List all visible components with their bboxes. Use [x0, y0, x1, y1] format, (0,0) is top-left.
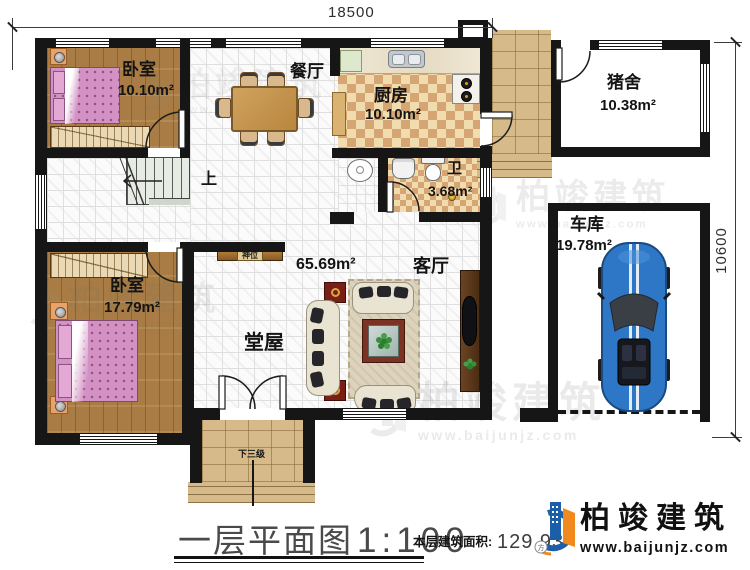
plan-title-text: 一层平面图	[178, 522, 353, 559]
room-label-kitchen: 厨房	[374, 87, 408, 104]
dimension-line-top	[12, 27, 492, 28]
car	[596, 241, 672, 413]
room-label-dining: 餐厅	[290, 63, 324, 80]
room-area-hall: 65.69m²	[296, 257, 356, 273]
room-label-pigsty: 猪舍	[607, 74, 641, 91]
floor-area-label: 本层建筑面积:	[413, 536, 492, 549]
room-label-bedroom-bottom: 卧室	[110, 277, 144, 294]
stair-up-label: 上	[201, 172, 217, 188]
room-label-bedroom-top: 卧室	[122, 61, 156, 78]
brand-logo-icon: 方	[531, 497, 577, 557]
dimension-width-label: 18500	[328, 4, 375, 21]
entry-steps-leader-line	[252, 460, 254, 506]
dimension-line-right	[735, 42, 736, 437]
room-area-garage: 19.78m²	[556, 238, 612, 253]
room-area-bedroom-bottom: 17.79m²	[104, 300, 160, 315]
room-area-bath: 3.68m²	[428, 184, 472, 198]
dimension-height-label: 10600	[713, 227, 730, 274]
room-area-kitchen: 10.10m²	[365, 107, 421, 122]
brand-name: 柏竣建筑	[580, 504, 732, 534]
brand-website[interactable]: www.baijunjz.com	[580, 541, 729, 556]
floor-plan-canvas: 柏竣建筑www.baijunjz.com 柏竣建筑www.baijunjz.co…	[0, 0, 750, 570]
room-area-bedroom-top: 10.10m²	[118, 83, 174, 98]
room-label-living: 客厅	[413, 257, 449, 275]
room-label-garage: 车库	[570, 216, 604, 233]
title-underline	[174, 556, 424, 559]
svg-text:方: 方	[538, 543, 545, 552]
title-underline	[174, 562, 424, 563]
room-label-bath: 卫	[447, 161, 462, 176]
room-label-hall: 堂屋	[244, 333, 284, 353]
room-area-pigsty: 10.38m²	[600, 98, 656, 113]
entry-steps-label: 下三级	[238, 450, 265, 459]
